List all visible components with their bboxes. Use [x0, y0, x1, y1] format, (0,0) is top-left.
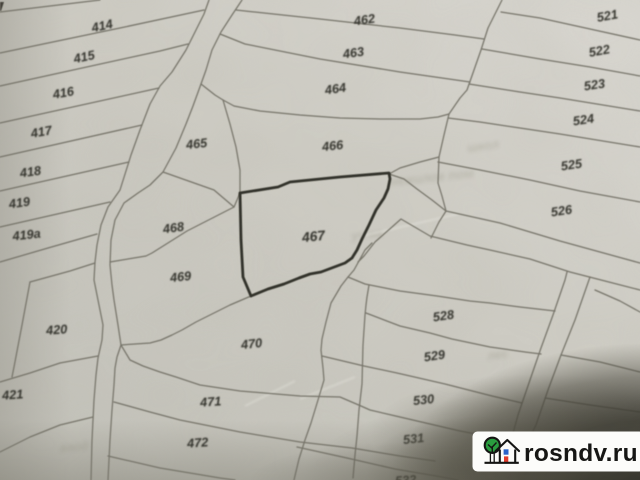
svg-text:469: 469	[168, 269, 192, 285]
svg-text:470: 470	[239, 336, 263, 352]
svg-text:466: 466	[320, 138, 344, 154]
svg-text:524: 524	[572, 112, 595, 129]
svg-text:420: 420	[45, 322, 68, 338]
svg-text:421: 421	[1, 387, 24, 403]
svg-text:472: 472	[186, 435, 209, 451]
svg-text:465: 465	[184, 136, 208, 152]
svg-text:471: 471	[199, 394, 222, 410]
svg-text:rosndv.ru: rosndv.ru	[524, 440, 638, 467]
svg-text:523: 523	[583, 77, 606, 94]
svg-text:467: 467	[300, 228, 327, 246]
svg-text:529: 529	[423, 348, 446, 365]
svg-text:ввод: ввод	[59, 439, 89, 455]
